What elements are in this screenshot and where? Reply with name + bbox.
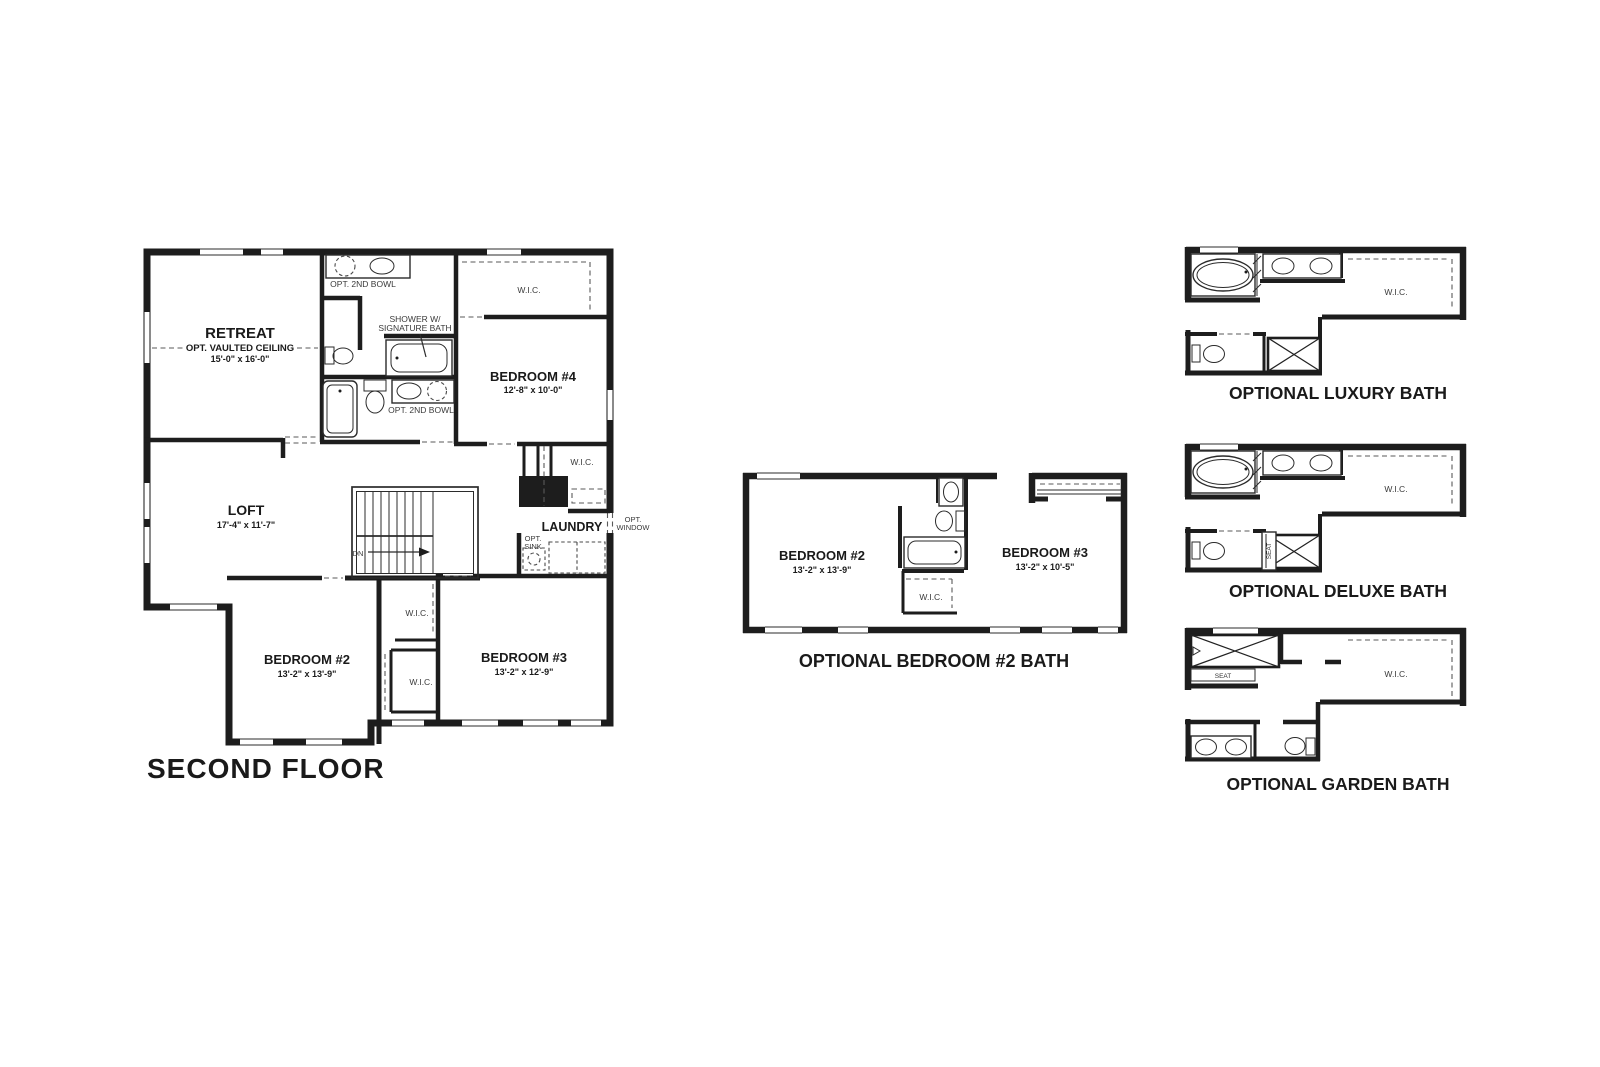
toilet-icon xyxy=(366,391,384,413)
toilet-tank-icon xyxy=(364,380,386,391)
stairs-dn-label: DN xyxy=(353,549,364,558)
plan-title: SECOND FLOOR xyxy=(147,753,385,784)
optional-luxury-bath-plan: W.I.C. OPTIONAL LUXURY BATH xyxy=(1185,247,1466,403)
wic-label: W.I.C. xyxy=(405,608,428,618)
plan-caption: OPTIONAL GARDEN BATH xyxy=(1227,774,1450,794)
toilet-tank-icon xyxy=(1306,738,1315,755)
opt-2nd-bowl-label: OPT. 2ND BOWL xyxy=(388,405,454,415)
optional-deluxe-bath-plan: SEAT W.I.C. OPTIONAL DELUXE BATH xyxy=(1185,444,1466,601)
retreat-size: 15'-0" x 16'-0" xyxy=(211,354,270,364)
vanity-counter xyxy=(392,380,454,403)
retreat-label: RETREAT xyxy=(205,325,275,342)
bedroom4-size: 12'-8" x 10'-0" xyxy=(504,385,563,395)
toilet-tank-icon xyxy=(956,511,965,531)
laundry-label: LAUNDRY xyxy=(542,520,603,534)
bath-shell xyxy=(1185,247,1466,375)
bedroom3-size: 13'-2" x 12'-9" xyxy=(495,667,554,677)
seat-label: SEAT xyxy=(1266,543,1273,560)
opt-window-line2: WINDOW xyxy=(617,523,651,532)
floor-plan-sheet: RETREAT OPT. VAULTED CEILING 15'-0" x 16… xyxy=(0,0,1600,1067)
bath-shell xyxy=(1185,444,1466,572)
toilet-icon xyxy=(333,348,353,364)
wic-label: W.I.C. xyxy=(409,677,432,687)
bedroom3-label: BEDROOM #3 xyxy=(481,650,567,665)
wic-label: W.I.C. xyxy=(919,592,942,602)
bedroom2-label: BEDROOM #2 xyxy=(264,652,350,667)
toilet-tank-icon xyxy=(1192,345,1200,362)
shower-stall-icon xyxy=(323,381,357,437)
plan-caption: OPTIONAL LUXURY BATH xyxy=(1229,383,1447,403)
bedroom2-size: 13'-2" x 13'-9" xyxy=(278,669,337,679)
opt-window-icon xyxy=(608,513,613,533)
optional-sink-icon xyxy=(528,553,540,565)
wic-label: W.I.C. xyxy=(517,285,540,295)
second-floor-plan: RETREAT OPT. VAULTED CEILING 15'-0" x 16… xyxy=(144,249,651,785)
bedroom3-label: BEDROOM #3 xyxy=(1002,545,1088,560)
vanity-counter xyxy=(1191,736,1251,758)
shower-note-line2: SIGNATURE BATH xyxy=(378,323,451,333)
toilet-icon xyxy=(936,511,953,531)
floor-plan-image: RETREAT OPT. VAULTED CEILING 15'-0" x 16… xyxy=(0,0,1600,1067)
bedroom3-size: 13'-2" x 10'-5" xyxy=(1016,562,1075,572)
opt-2nd-bowl-label: OPT. 2ND BOWL xyxy=(330,279,396,289)
toilet-icon xyxy=(1204,346,1225,363)
bathroom-fixtures xyxy=(1191,635,1315,758)
wic-label: W.I.C. xyxy=(570,457,593,467)
toilet-icon xyxy=(1285,738,1305,755)
optional-bedroom2-bath-plan: BEDROOM #2 13'-2" x 13'-9" BEDROOM #3 13… xyxy=(743,473,1127,671)
bedroom2-size: 13'-2" x 13'-9" xyxy=(793,565,852,575)
wic-label: W.I.C. xyxy=(1384,484,1407,494)
seat-label: SEAT xyxy=(1215,673,1232,680)
bedroom4-label: BEDROOM #4 xyxy=(490,369,577,384)
bathroom-fixtures xyxy=(904,478,965,568)
optional-garden-bath-plan: SEAT W.I.C. OPTIONAL GARDEN BATH xyxy=(1185,628,1466,794)
plan-caption: OPTIONAL BEDROOM #2 BATH xyxy=(799,651,1069,671)
wic-label: W.I.C. xyxy=(1384,287,1407,297)
garden-tub-icon xyxy=(1193,259,1253,291)
stair-treads xyxy=(365,492,433,573)
loft-label: LOFT xyxy=(228,502,265,518)
stairs xyxy=(352,487,478,578)
plan-caption: OPTIONAL DELUXE BATH xyxy=(1229,581,1447,601)
loft-size: 17'-4" x 11'-7" xyxy=(217,520,275,530)
vanity-counter xyxy=(1263,254,1341,278)
bedroom2-label: BEDROOM #2 xyxy=(779,548,865,563)
retreat-note: OPT. VAULTED CEILING xyxy=(186,343,294,354)
wic-label: W.I.C. xyxy=(1384,669,1407,679)
opt-sink-line2: SINK xyxy=(524,542,542,551)
